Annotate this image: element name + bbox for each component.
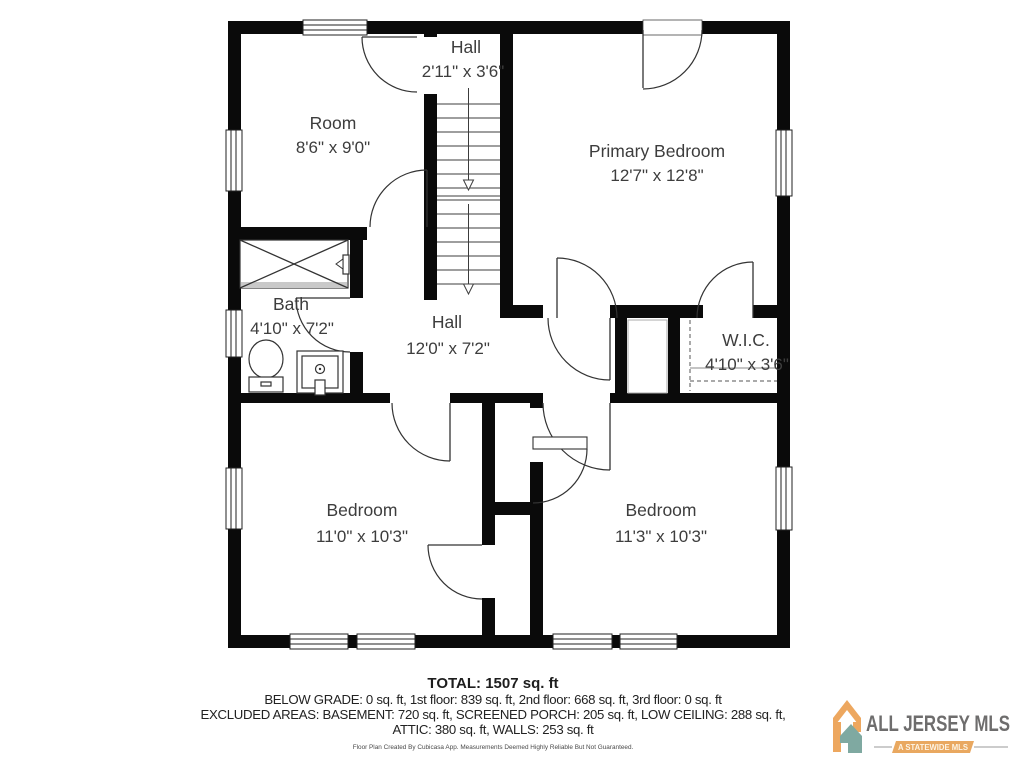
bedroom-right-dims: 11'3" x 10'3" xyxy=(615,527,707,546)
floors-area-text: BELOW GRADE: 0 sq. ft, 1st floor: 839 sq… xyxy=(264,692,722,707)
bedroom-left-dims: 11'0" x 10'3" xyxy=(316,527,408,546)
bedroom-left-label: Bedroom xyxy=(326,500,397,520)
staircase xyxy=(437,88,500,294)
room-dims: 8'6" x 9'0" xyxy=(296,138,370,157)
window xyxy=(357,634,415,649)
disclaimer-text: Floor Plan Created By Cubicasa App. Meas… xyxy=(353,744,634,751)
primary-bedroom-dims: 12'7" x 12'8" xyxy=(610,166,703,185)
window xyxy=(303,20,367,35)
wic-dims: 4'10" x 3'6" xyxy=(705,355,789,374)
window xyxy=(553,634,612,649)
window xyxy=(290,634,348,649)
room-label: Room xyxy=(310,113,357,133)
logo-title: ALL JERSEY MLS xyxy=(866,711,1010,736)
bath-fixtures xyxy=(240,240,349,395)
wic-label: W.I.C. xyxy=(722,330,770,350)
bedroom-right-label: Bedroom xyxy=(625,500,696,520)
excluded-area-text: EXCLUDED AREAS: BASEMENT: 720 sq. ft, SC… xyxy=(201,707,786,722)
door xyxy=(697,262,753,318)
attic-walls-text: ATTIC: 380 sq. ft, WALLS: 253 sq. ft xyxy=(392,722,594,737)
window xyxy=(620,634,677,649)
hall-label: Hall xyxy=(432,312,462,332)
hall-dims: 12'0" x 7'2" xyxy=(406,339,490,358)
logo-subtitle: A STATEWIDE MLS xyxy=(898,743,969,752)
door xyxy=(548,318,610,380)
window xyxy=(226,468,242,529)
door xyxy=(643,20,702,89)
linen-closet xyxy=(628,320,667,393)
window xyxy=(776,130,792,196)
sink xyxy=(297,351,343,395)
bath-dims: 4'10" x 7'2" xyxy=(250,319,334,338)
house-icon xyxy=(833,700,862,753)
floor-plan-page: Room 8'6" x 9'0" Hall 2'11" x 3'6" Prima… xyxy=(0,0,1024,768)
closet-door xyxy=(428,545,482,599)
room-labels: Room 8'6" x 9'0" Hall 2'11" x 3'6" Prima… xyxy=(250,37,789,546)
area-summary: TOTAL: 1507 sq. ft BELOW GRADE: 0 sq. ft… xyxy=(201,675,786,751)
window xyxy=(776,467,792,530)
door xyxy=(392,403,450,461)
floor-plan-svg: Room 8'6" x 9'0" Hall 2'11" x 3'6" Prima… xyxy=(0,0,1024,768)
toilet xyxy=(249,340,283,392)
stairs-down-arrow xyxy=(464,284,474,294)
door xyxy=(370,170,427,227)
door xyxy=(557,258,617,318)
door xyxy=(362,37,417,92)
window xyxy=(226,130,242,191)
window xyxy=(226,310,242,357)
hall-upper-dims: 2'11" x 3'6" xyxy=(422,62,505,81)
bath-label: Bath xyxy=(273,294,309,314)
hall-upper-label: Hall xyxy=(451,37,481,57)
mls-logo: ALL JERSEY MLS A STATEWIDE MLS xyxy=(833,700,1010,753)
primary-bedroom-label: Primary Bedroom xyxy=(589,141,725,161)
bathtub xyxy=(240,240,349,288)
total-area-text: TOTAL: 1507 sq. ft xyxy=(427,675,558,692)
